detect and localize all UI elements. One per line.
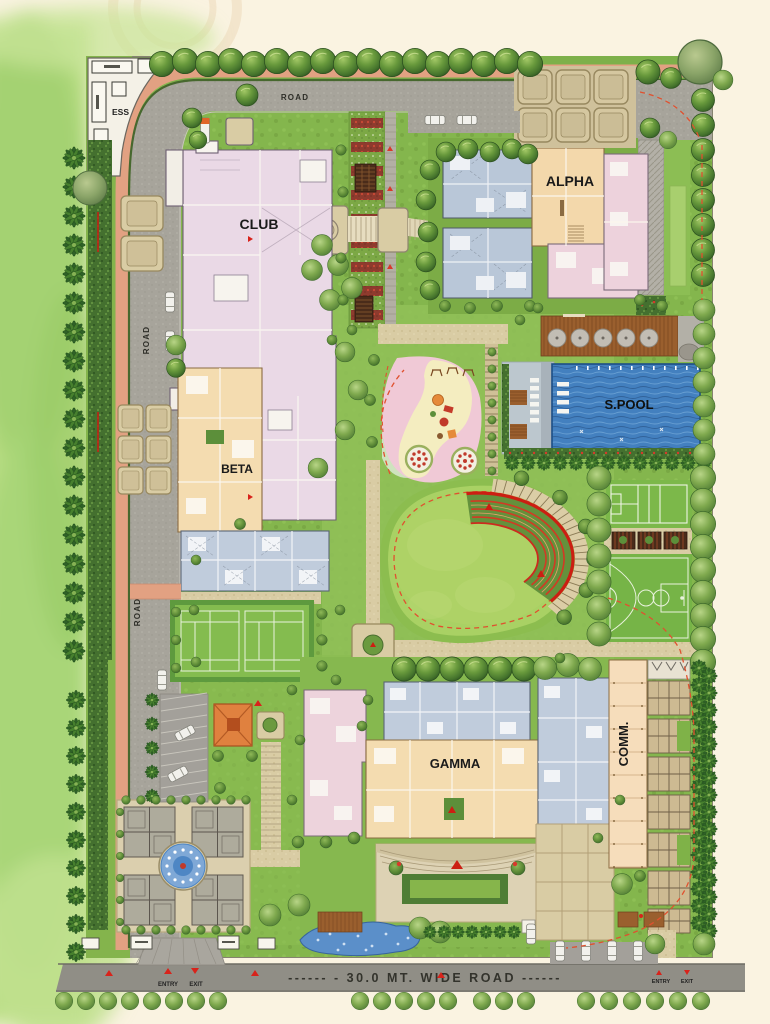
svg-text:GAMMA: GAMMA [430, 756, 481, 771]
svg-text:COMM.: COMM. [616, 722, 631, 767]
svg-text:ROAD: ROAD [142, 326, 151, 354]
svg-text:CLUB: CLUB [240, 216, 279, 232]
svg-text:------ - 30.0 MT. WIDE ROAD: ------ - 30.0 MT. WIDE ROAD ------ [288, 971, 562, 985]
svg-text:EXIT: EXIT [681, 979, 694, 985]
svg-text:S.POOL: S.POOL [604, 397, 653, 412]
svg-text:ROAD: ROAD [133, 598, 142, 626]
svg-text:ESS: ESS [112, 107, 129, 117]
svg-text:BETA: BETA [221, 462, 253, 476]
svg-text:ENTRY: ENTRY [652, 979, 671, 985]
svg-text:ALPHA: ALPHA [546, 173, 594, 189]
svg-text:EXIT: EXIT [189, 982, 203, 988]
svg-text:ROAD: ROAD [281, 93, 309, 102]
svg-text:ENTRY: ENTRY [158, 982, 178, 988]
